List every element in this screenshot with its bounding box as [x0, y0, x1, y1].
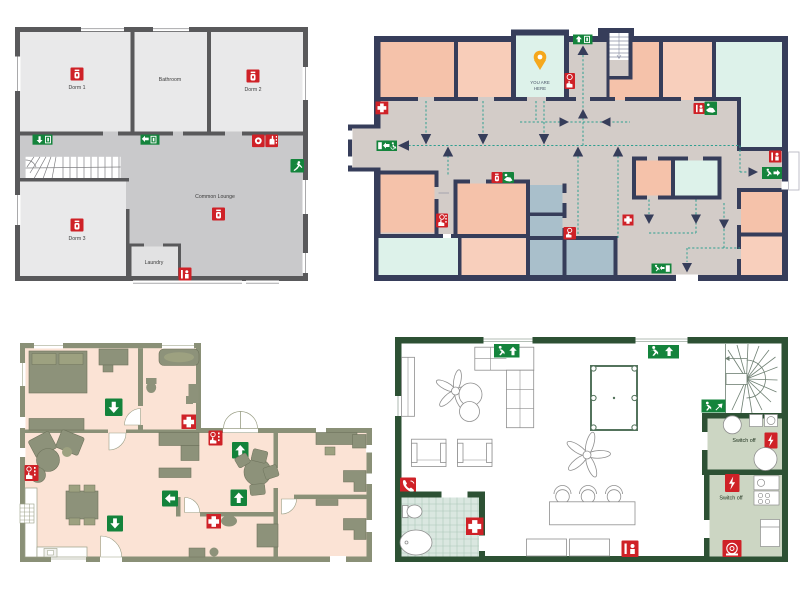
svg-text:Bathroom: Bathroom [159, 77, 182, 83]
svg-text:Laundry: Laundry [145, 260, 164, 266]
svg-text:Dorm 3: Dorm 3 [68, 236, 85, 242]
svg-text:Switch off: Switch off [719, 496, 743, 502]
svg-text:Dorm 1: Dorm 1 [68, 85, 85, 91]
svg-text:Dorm 2: Dorm 2 [244, 87, 261, 93]
svg-text:Switch off: Switch off [732, 438, 756, 444]
svg-text:Common Lounge: Common Lounge [195, 194, 235, 200]
svg-text:YOU ARE: YOU ARE [530, 80, 550, 85]
svg-text:HERE: HERE [534, 86, 546, 91]
